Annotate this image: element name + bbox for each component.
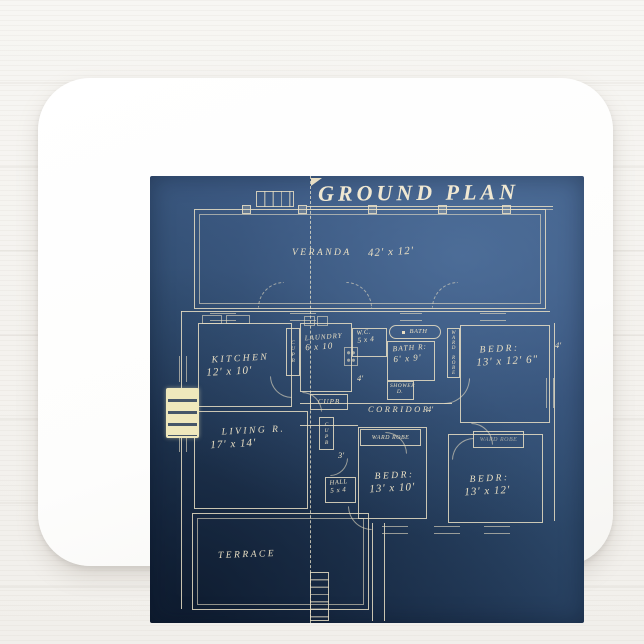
shower-dims: D.	[390, 389, 410, 395]
wardrobe: WARD ROBE	[447, 328, 460, 378]
shower-label: SHOWER D.	[390, 383, 415, 396]
terrace-steps	[310, 572, 329, 621]
bedroom-ne-label: BEDR: 13' x 12' 6"	[479, 342, 538, 369]
window-mark	[434, 526, 460, 534]
window-mark	[400, 313, 422, 321]
veranda-post	[368, 205, 377, 214]
bench-fixture	[226, 315, 250, 324]
bath-tag-bullet-icon	[402, 331, 405, 334]
room-bedroom-ne	[460, 325, 550, 423]
window-mark	[480, 313, 506, 321]
corridor-label: CORRIDOR	[368, 405, 431, 415]
wc-dims: 5 x 4	[357, 336, 375, 346]
cupboard: CUPB	[319, 417, 334, 450]
laundry-tub	[304, 316, 315, 326]
fireplace	[166, 388, 199, 438]
veranda-post	[298, 205, 307, 214]
window-mark	[484, 526, 510, 534]
veranda-name: VERANDA	[292, 248, 352, 259]
corridor-width-annotation: 4'	[427, 404, 433, 414]
entry-steps	[256, 191, 294, 207]
cupboard: CUPB	[286, 328, 300, 376]
terrace-label: TERRACE	[218, 549, 276, 562]
bathroom-label: BATH R: 6' x 9'	[392, 343, 428, 364]
hall-dims: 5 x 4	[330, 486, 349, 496]
window-mark	[179, 356, 187, 382]
bedroom-s-label: BEDR: 13' x 10'	[374, 470, 415, 496]
wall-offset-annotation: 4'	[555, 340, 561, 350]
bedroom-se-label: BEDR: 13' x 12'	[469, 473, 510, 499]
plan-title: GROUND PLAN	[318, 179, 519, 206]
veranda-post	[242, 205, 251, 214]
bedroom-s-dims: 13' x 10'	[369, 481, 416, 496]
veranda-post	[502, 205, 511, 214]
laundry-tub	[317, 316, 328, 326]
window-mark	[382, 526, 408, 534]
veranda-post	[438, 205, 447, 214]
living-label: LIVING R. 17' x 14'	[221, 424, 286, 451]
laundry-label: LAUNDRY 6 x 10	[304, 332, 343, 353]
bath-tag-text: BATH	[409, 328, 427, 335]
house-outer-wall-right	[554, 323, 555, 521]
door-swing-arc	[330, 458, 348, 476]
mousepad: GROUND PLAN VERANDA 42' x 12'	[38, 78, 613, 566]
house-outer-wall-top	[181, 311, 550, 312]
passage-width-annotation: 4'	[357, 373, 363, 383]
lower-wall	[372, 523, 385, 621]
bath-tag: BATH	[389, 325, 441, 339]
sink-fixture	[202, 315, 222, 324]
veranda-dims: 42' x 12'	[367, 245, 414, 260]
kitchen-label: KITCHEN 12' x 10'	[211, 353, 270, 380]
bedroom-se-dims: 13' x 12'	[464, 484, 511, 499]
wc-label: W.C. 5 x 4	[356, 328, 375, 346]
veranda-label: VERANDA 42' x 12'	[292, 246, 414, 259]
blueprint-floor-plan: GROUND PLAN VERANDA 42' x 12'	[150, 176, 584, 623]
hall-label: HALL 5 x 4	[329, 478, 348, 495]
